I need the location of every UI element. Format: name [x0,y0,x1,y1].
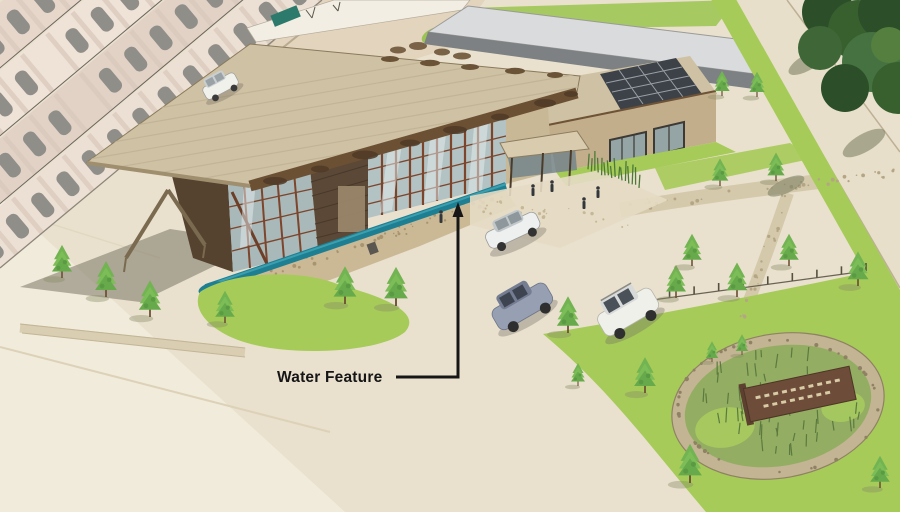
speckle [568,208,569,209]
speckle [543,210,546,213]
speckle [847,180,849,182]
rim-stone [677,395,680,398]
speckle [384,232,386,234]
rim-stone [685,377,689,381]
rim-stone [810,467,813,470]
speckle [360,243,364,247]
speckle [311,257,314,260]
speckle [532,209,534,211]
speckle [410,223,411,224]
rim-stone [864,372,868,376]
speckle [393,233,395,235]
speckle [802,183,806,187]
wood-panel [338,186,365,232]
speckle [326,257,329,260]
rim-stone [834,458,838,462]
rim-stone [679,391,682,394]
rim-stone [844,355,848,359]
tall-grass [703,388,704,402]
speckle [784,195,786,197]
rim-stone [717,458,720,461]
water-feature-label: Water Feature [277,369,383,386]
speckle [740,315,742,317]
speckle [485,208,487,210]
site-rendering-canvas: Water Feature [0,0,900,512]
rim-stone [749,341,753,345]
reed [591,158,592,171]
speckle [583,211,586,214]
speckle [521,206,524,209]
speckle [412,226,413,227]
speckle [753,288,756,291]
rim-stone [732,345,735,348]
speckle [298,266,301,269]
speckle [602,218,604,220]
speckle [882,176,885,179]
rim-stone [837,352,839,354]
tall-grass [817,410,818,424]
speckle [429,217,431,219]
speckle [337,251,339,253]
rim-stone [707,452,709,454]
speckle [546,213,548,215]
reed [632,164,633,184]
speckle [892,168,894,170]
speckle [750,288,753,291]
speckle [405,233,407,235]
architectural-rendering: Water Feature [0,0,900,512]
reed [639,175,640,188]
speckle [766,188,768,190]
speckle [874,171,876,173]
speckle [760,268,763,271]
rim-stone [864,436,867,439]
speckle [373,239,376,242]
reed [598,158,599,173]
rim-stone [814,343,818,347]
speckle [489,212,492,215]
rim-stone [724,348,727,351]
speckle [690,201,694,205]
speckle [482,210,485,213]
rim-stone [778,471,781,474]
rim-stone [677,404,680,407]
speckle [831,178,835,182]
speckle [807,184,809,186]
speckle [701,198,703,200]
speckle [444,219,446,221]
speckle [426,222,428,224]
speckle [354,245,357,248]
speckle [292,264,296,268]
tall-grass [706,393,707,403]
speckle [404,228,406,230]
speckle [776,227,780,231]
rim-stone [786,339,789,342]
rim-stone [876,408,879,411]
speckle [818,178,821,181]
rim-stone [872,384,875,387]
rim-stone [694,442,697,445]
speckle [773,237,775,239]
speckle [695,199,699,203]
speckle [742,314,744,316]
speckle [763,246,764,247]
speckle [451,211,453,213]
speckle [627,225,628,226]
speckle [836,180,839,183]
rim-stone [828,348,832,352]
speckle [843,175,847,179]
rim-stone [698,445,702,449]
speckle [538,212,541,215]
rim-stone [693,369,696,372]
speckle [877,171,880,174]
rim-stone [720,350,723,353]
speckle [863,175,865,177]
tall-grass [791,348,792,358]
rim-stone [678,415,681,418]
speckle [486,205,488,207]
rim-stone [703,449,707,453]
speckle [673,197,676,200]
speckle [756,276,758,278]
rim-stone [768,339,771,342]
speckle [595,221,597,223]
speckle [745,299,748,302]
speckle [398,232,401,235]
speckle [856,174,858,176]
speckle [767,235,770,238]
speckle [397,231,399,233]
speckle [760,260,762,262]
speckle [826,183,829,186]
speckle [313,262,317,266]
speckle [500,202,502,204]
speckle [621,226,623,228]
rim-stone [858,366,862,370]
tall-grass [737,408,738,422]
speckle [542,215,546,219]
speckle [590,212,593,215]
rim-stone [873,387,876,390]
speckle [496,201,498,203]
reed [625,161,626,181]
speckle [395,235,397,237]
speckle [757,283,758,284]
speckle [727,189,730,192]
speckle [781,212,783,214]
rim-stone [813,466,816,469]
speckle [282,270,284,272]
speckle [379,235,383,239]
